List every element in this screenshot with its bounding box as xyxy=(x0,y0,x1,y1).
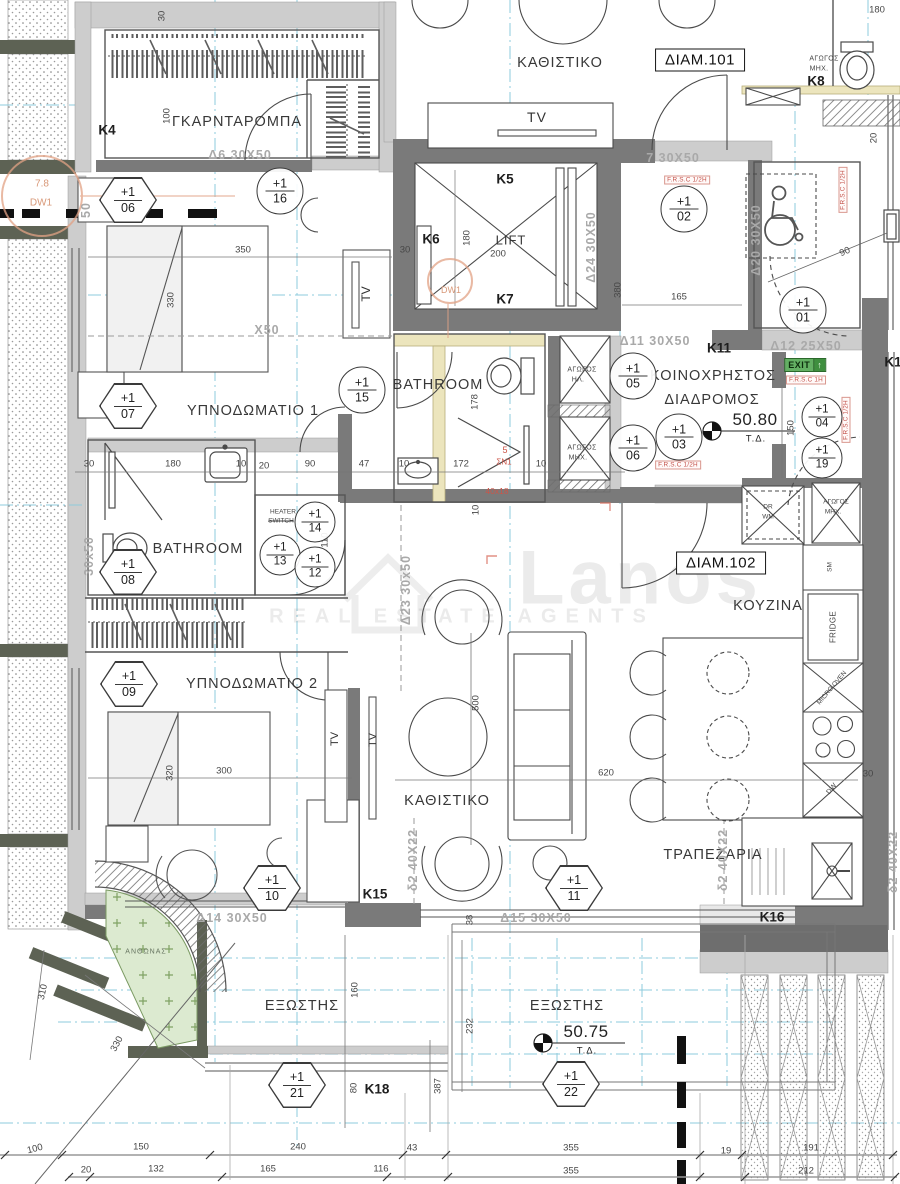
marker-04: +104 xyxy=(802,397,843,438)
dim: 165 xyxy=(260,1164,276,1175)
dim: 47 xyxy=(359,459,370,470)
dim: 165 xyxy=(671,292,687,303)
duct-label-mech-mid-2: ΜΗΧ. xyxy=(569,455,588,462)
duct-label-mech-kitchen-1: ΑΓΩΓΟΣ xyxy=(823,499,848,506)
fire-rating-101: F.R.S.C 1/2H xyxy=(664,176,710,185)
dim: 20 xyxy=(869,133,880,144)
dim: 80 xyxy=(349,1083,360,1094)
column-k1: K1 xyxy=(884,355,900,370)
stamp-value: 7.8 xyxy=(35,179,49,190)
beam-d11: Δ11 30X50 xyxy=(620,334,691,348)
dim: 387 xyxy=(433,1078,444,1094)
heater-label-2: SWITCH xyxy=(268,518,294,525)
dim: 160 xyxy=(350,982,361,998)
room-label-kitchen: ΚΟΥΖΙΝΑ xyxy=(733,598,803,614)
marker-01: +101 xyxy=(780,287,827,334)
dim: 30 xyxy=(84,459,95,470)
dim: 150 xyxy=(133,1142,149,1153)
column-k6: K6 xyxy=(422,232,439,247)
floor-plan: ΓΚΑΡΝΤΑΡΟΜΠΑ ΚΑΘΙΣΤΙΚΟ LIFT ΥΠΝΟΔΩΜΑΤΙΟ … xyxy=(0,0,900,1184)
column-k4: K4 xyxy=(98,123,115,138)
beam-d7: 7 30X50 xyxy=(646,151,700,165)
fire-rating-corridor: F.R.S.C 1/2H xyxy=(655,461,701,470)
marker-03: +103 xyxy=(656,414,703,461)
beam-s2b: δ2 40X22 xyxy=(716,829,730,891)
dim: 330 xyxy=(166,292,177,308)
dim: 380 xyxy=(613,282,624,298)
level-datum-corridor: Τ.Δ. xyxy=(746,434,766,445)
room-label-dining: ΤΡΑΠΕΖΑΡΙΑ xyxy=(663,847,762,863)
column-k5: K5 xyxy=(496,172,513,187)
marker-15: +115 xyxy=(339,367,386,414)
wheelchair-icon xyxy=(765,187,803,246)
dim: 355 xyxy=(563,1166,579,1177)
dim: 19 xyxy=(721,1146,732,1157)
dim: 240 xyxy=(290,1142,306,1153)
duct-label-mech-mid-1: ΑΓΩΓΟΣ xyxy=(567,445,596,452)
room-label-wardrobe: ΓΚΑΡΝΤΑΡΟΜΠΑ xyxy=(172,114,302,130)
marker-19: +119 xyxy=(802,438,843,479)
level-datum-balcony: Τ.Δ. xyxy=(577,1046,597,1057)
marker-02: +102 xyxy=(661,186,708,233)
stamp-size: 40x18 xyxy=(485,486,508,496)
dim: 20 xyxy=(259,461,270,472)
dim: 320 xyxy=(165,765,176,781)
room-label-bathroom1: BATHROOM xyxy=(393,377,484,393)
marker-12: +112 xyxy=(295,547,336,588)
dim: 132 xyxy=(148,1164,164,1175)
tv-label-living102: TV xyxy=(367,733,379,747)
beam-d23: Δ23 30x50 xyxy=(399,555,413,625)
room-label-living102: ΚΑΘΙΣΤΙΚΟ xyxy=(404,793,490,809)
beam-s2c: δ2 40X22 xyxy=(886,831,900,893)
tv-label-bedroom1: TV xyxy=(359,286,373,301)
beam-x50: X50 xyxy=(254,323,279,337)
marker-14: +114 xyxy=(295,502,336,543)
room-label-bedroom1: ΥΠΝΟΔΩΜΑΤΙΟ 1 xyxy=(187,403,319,419)
dim: 10 xyxy=(399,459,410,470)
left-facade xyxy=(0,0,86,930)
dim: 90 xyxy=(305,459,316,470)
room-label-corridor-1: ΚΟΙΝΟΧΡΗΣΤΟΣ xyxy=(650,368,776,384)
beam-d20: Δ20 30X50 xyxy=(749,204,763,276)
dim: 43 xyxy=(407,1143,418,1154)
column-k16: K16 xyxy=(760,910,785,925)
exit-sign: EXIT ↑ xyxy=(784,358,826,372)
apartment-102-tag: ΔΙΑΜ.102 xyxy=(676,552,766,575)
dim: 180 xyxy=(462,230,473,246)
fire-rating-topright: F.R.S.C 1/2H xyxy=(839,167,848,213)
dim: 500 xyxy=(471,695,482,711)
appliance-fridge: FRIDGE xyxy=(829,611,838,643)
marker-06c: +106 xyxy=(610,425,657,472)
dim: 200 xyxy=(490,249,506,260)
dim: 212 xyxy=(798,1166,814,1177)
dim: 178 xyxy=(470,394,481,410)
dim: 191 xyxy=(803,1143,819,1154)
dim: 172 xyxy=(453,459,469,470)
dim: 350 xyxy=(235,245,251,256)
watermark-tagline: REAL ESTATE AGENTS xyxy=(269,606,655,629)
duct-label-elec-1: ΑΓΩΓΟΣ xyxy=(567,367,596,374)
beam-s2a: δ2 40X22 xyxy=(406,829,420,891)
beam-d6: Δ6 30X50 xyxy=(208,148,272,162)
room-label-bathroom2: BATHROOM xyxy=(153,541,244,557)
dim: 10 xyxy=(236,459,247,470)
duct-label-elec-2: ΗΛ. xyxy=(572,377,585,384)
dim: 300 xyxy=(216,766,232,777)
stamp-dw1-lift: DW1 xyxy=(441,285,461,295)
duct-label-mech-top-1: ΑΓΩΓΟΣ xyxy=(809,56,838,63)
room-label-balcony2: ΕΞΩΣΤΗΣ xyxy=(530,998,604,1014)
marker-16: +116 xyxy=(257,168,304,215)
tv-label-living101: TV xyxy=(527,109,547,125)
dim: 10 xyxy=(536,459,547,470)
dim: 38 xyxy=(465,915,476,926)
appliance-sm: SM xyxy=(827,562,834,572)
exit-sign-text: EXIT xyxy=(785,359,813,371)
exit-arrow-icon: ↑ xyxy=(813,359,825,371)
beam-50: 50 xyxy=(79,202,93,218)
dim: 180 xyxy=(869,5,885,16)
dim: 20 xyxy=(81,1165,92,1176)
column-k11: K11 xyxy=(707,341,731,356)
dim: 180 xyxy=(165,459,181,470)
apartment-101-tag: ΔΙΑΜ.101 xyxy=(655,49,745,72)
appliance-wm: WM xyxy=(762,514,774,521)
room-label-balcony1: ΕΞΩΣΤΗΣ xyxy=(265,998,339,1014)
fire-rating-right: F.R.S.C 1/2H xyxy=(842,397,851,443)
column-k18: K18 xyxy=(365,1082,390,1097)
dim: 30 xyxy=(400,245,411,256)
beam-d15: Δ15 30X50 xyxy=(500,911,572,925)
room-label-corridor-2: ΔΙΑΔΡΟΜΟΣ xyxy=(664,392,759,408)
living101-furniture xyxy=(412,0,715,148)
beam-d12: Δ12 25X50 xyxy=(770,339,842,353)
room-label-lift: LIFT xyxy=(496,233,527,248)
heater-label-1: HEATER xyxy=(270,509,296,516)
duct-label-mech-top-2: ΜΗΧ. xyxy=(810,66,829,73)
room-label-bedroom2: ΥΠΝΟΔΩΜΑΤΙΟ 2 xyxy=(186,676,318,692)
appliance-dr: DR xyxy=(763,504,772,511)
column-k8: K8 xyxy=(807,74,824,89)
dim: 116 xyxy=(373,1164,388,1175)
dim: 30 xyxy=(157,11,168,22)
duct-label-mech-kitchen-2: ΜΗΧ. xyxy=(825,509,841,516)
column-k7: K7 xyxy=(496,292,513,307)
dim: 620 xyxy=(598,768,614,779)
room-label-living101: ΚΑΘΙΣΤΙΚΟ xyxy=(517,55,603,71)
level-value-balcony: 50.75 xyxy=(563,1022,608,1042)
stamp-dw1-left: DW1 xyxy=(30,198,52,209)
marker-05: +105 xyxy=(610,353,657,400)
level-value-corridor: 50.80 xyxy=(732,410,777,430)
tv-label-bedroom2: TV xyxy=(329,732,341,746)
stamp-five: 5 xyxy=(502,445,507,455)
room-label-flowerbed: ΑΝΘΩΝΑΣ xyxy=(125,949,166,956)
dim: 10 xyxy=(471,505,482,516)
dim: 232 xyxy=(465,1018,476,1034)
beam-d24: Δ24 30X50 xyxy=(584,211,598,283)
dim: 150 xyxy=(786,420,797,436)
beam-30x50: 30x50 xyxy=(82,536,96,576)
dim: 30 xyxy=(863,769,874,780)
column-k15: K15 xyxy=(363,887,388,902)
beam-d14: Δ14 30X50 xyxy=(196,911,268,925)
dim: 355 xyxy=(563,1143,579,1154)
dim: 100 xyxy=(162,108,173,124)
fire-rating-exit: F.R.S.C 1H xyxy=(786,376,826,385)
stamp-sn: ΣΝ1 xyxy=(496,458,511,467)
